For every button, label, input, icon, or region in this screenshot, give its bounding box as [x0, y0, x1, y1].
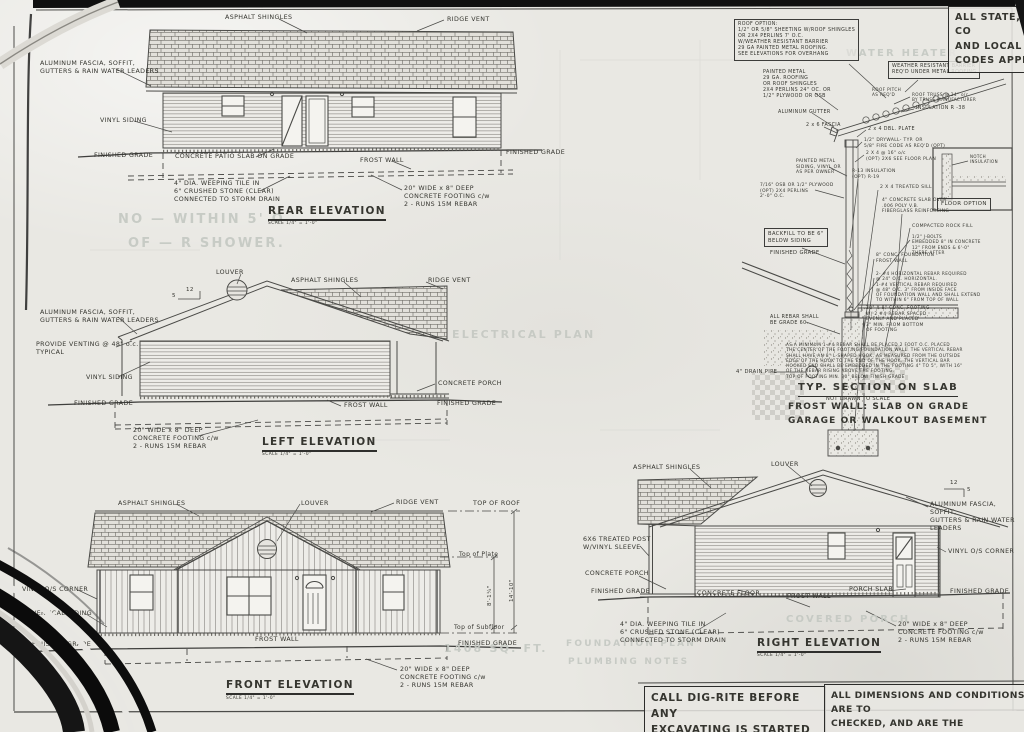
scan-artifacts — [0, 0, 1024, 732]
corner-wedge-artifact — [1014, 0, 1024, 36]
bottom-left-swirl-artifact — [0, 548, 152, 732]
top-edge-artifact — [33, 0, 1015, 8]
blueprint-sheet: ASPHALT SHINGLESRIDGE VENTALUMINUM FASCI… — [0, 0, 1024, 732]
left-line-artifact — [26, 14, 31, 310]
top-left-curl-highlight — [0, 2, 118, 64]
